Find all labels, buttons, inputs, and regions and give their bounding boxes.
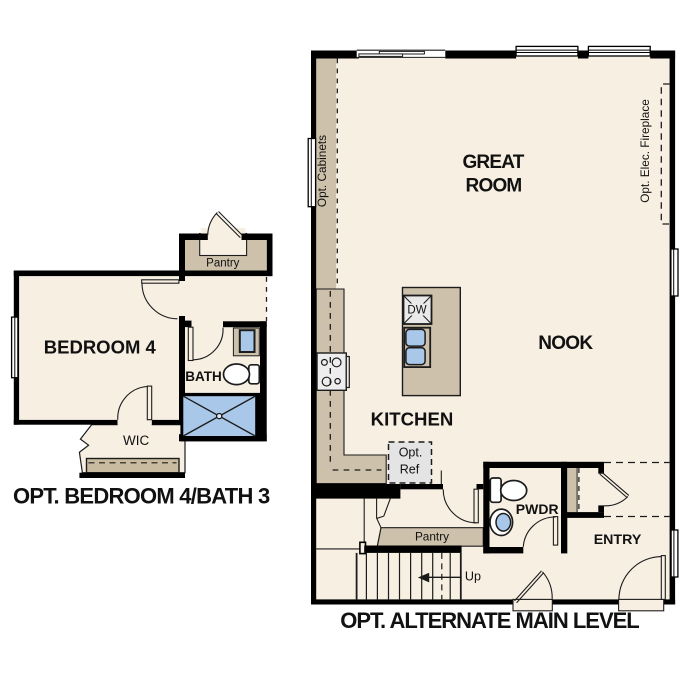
- svg-text:Ref: Ref: [400, 463, 420, 477]
- svg-text:OPT. ALTERNATE MAIN LEVEL: OPT. ALTERNATE MAIN LEVEL: [340, 608, 639, 633]
- svg-text:NOOK: NOOK: [538, 333, 593, 354]
- svg-text:PWDR: PWDR: [516, 501, 559, 517]
- svg-text:Opt. Cabinets: Opt. Cabinets: [315, 135, 329, 207]
- svg-text:OPT. BEDROOM 4/BATH 3: OPT. BEDROOM 4/BATH 3: [13, 484, 270, 509]
- svg-text:WIC: WIC: [123, 433, 149, 448]
- svg-text:KITCHEN: KITCHEN: [371, 408, 454, 429]
- svg-text:Pantry: Pantry: [415, 530, 449, 544]
- svg-text:Opt.: Opt.: [399, 446, 423, 460]
- svg-text:BEDROOM 4: BEDROOM 4: [44, 337, 157, 358]
- svg-text:Up: Up: [465, 570, 481, 584]
- svg-text:ENTRY: ENTRY: [594, 532, 642, 548]
- svg-text:Pantry: Pantry: [206, 258, 239, 270]
- svg-text:ROOM: ROOM: [466, 176, 522, 197]
- svg-text:GREAT: GREAT: [462, 152, 524, 173]
- svg-text:Opt. Elec. Fireplace: Opt. Elec. Fireplace: [638, 99, 652, 203]
- svg-text:DW: DW: [407, 304, 426, 316]
- svg-text:BATH: BATH: [185, 369, 222, 384]
